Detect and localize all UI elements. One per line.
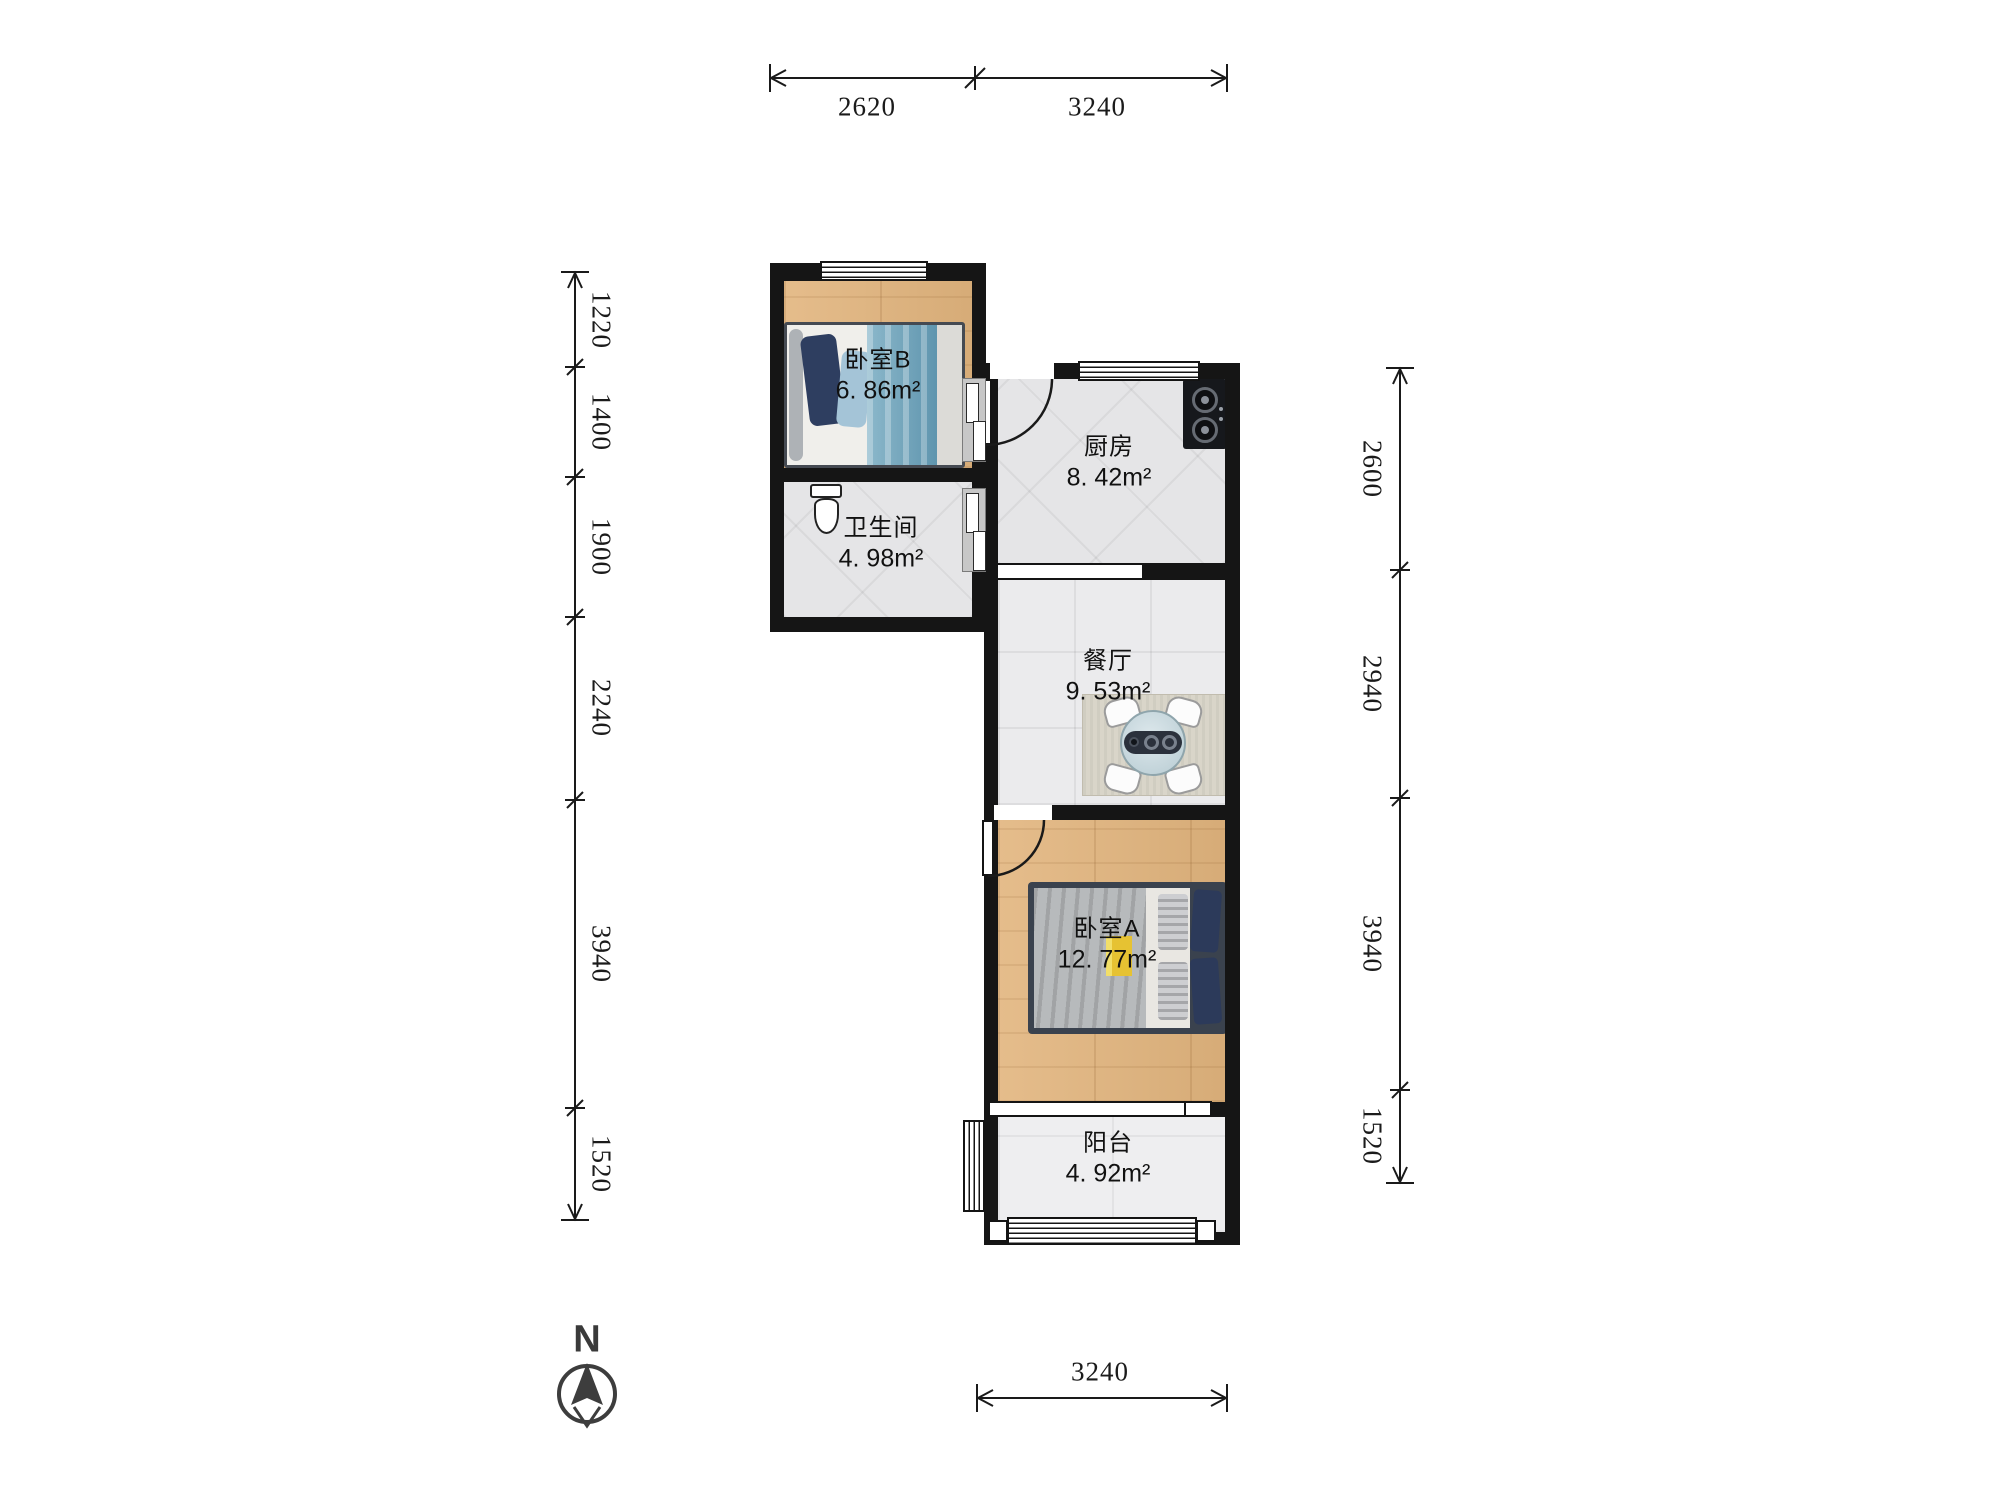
room-area: 12. 77m² — [1058, 944, 1157, 975]
room-area: 4. 98m² — [839, 543, 924, 574]
room-name: 卧室B — [836, 345, 921, 375]
room-label-bathroom: 卫生间 4. 98m² — [839, 513, 924, 574]
room-area: 6. 86m² — [836, 375, 921, 406]
entry-door-arc — [986, 379, 1052, 445]
room-name: 卧室A — [1058, 914, 1157, 944]
dim-left-0: 1220 — [586, 291, 617, 349]
room-label-kitchen: 厨房 8. 42m² — [1067, 432, 1152, 493]
bedroomA-door-arc — [988, 820, 1044, 876]
dim-right-3: 1520 — [1357, 1107, 1388, 1165]
dim-left-3: 2240 — [586, 679, 617, 737]
room-label-bedroomB: 卧室B 6. 86m² — [836, 345, 921, 406]
room-label-balcony: 阳台 4. 92m² — [1066, 1128, 1151, 1189]
dim-left-1: 1400 — [586, 393, 617, 451]
dim-left-5: 1520 — [586, 1135, 617, 1193]
room-name: 卫生间 — [839, 513, 924, 543]
dim-left-4: 3940 — [586, 925, 617, 983]
dim-bottom-0: 3240 — [1071, 1357, 1129, 1388]
room-area: 9. 53m² — [1066, 676, 1151, 707]
room-label-bedroomA: 卧室A 12. 77m² — [1058, 914, 1157, 975]
north-arrow-icon — [559, 1363, 615, 1426]
floor-plan: 卧室B 6. 86m² 厨房 8. 42m² 卫生间 4. 98m² 餐厅 9.… — [0, 0, 2000, 1500]
room-area: 4. 92m² — [1066, 1158, 1151, 1189]
room-name: 餐厅 — [1066, 646, 1151, 676]
dim-top-1: 3240 — [1068, 92, 1126, 123]
room-name: 阳台 — [1066, 1128, 1151, 1158]
dim-left-2: 1900 — [586, 518, 617, 576]
room-label-dining: 餐厅 9. 53m² — [1066, 646, 1151, 707]
north-label: N — [573, 1319, 600, 1362]
dimension-overlay — [0, 0, 2000, 1500]
room-name: 厨房 — [1067, 432, 1152, 462]
room-area: 8. 42m² — [1067, 462, 1152, 493]
dim-top-0: 2620 — [838, 92, 896, 123]
dim-right-1: 2940 — [1357, 655, 1388, 713]
dim-right-0: 2600 — [1357, 440, 1388, 498]
dim-right-2: 3940 — [1357, 915, 1388, 973]
